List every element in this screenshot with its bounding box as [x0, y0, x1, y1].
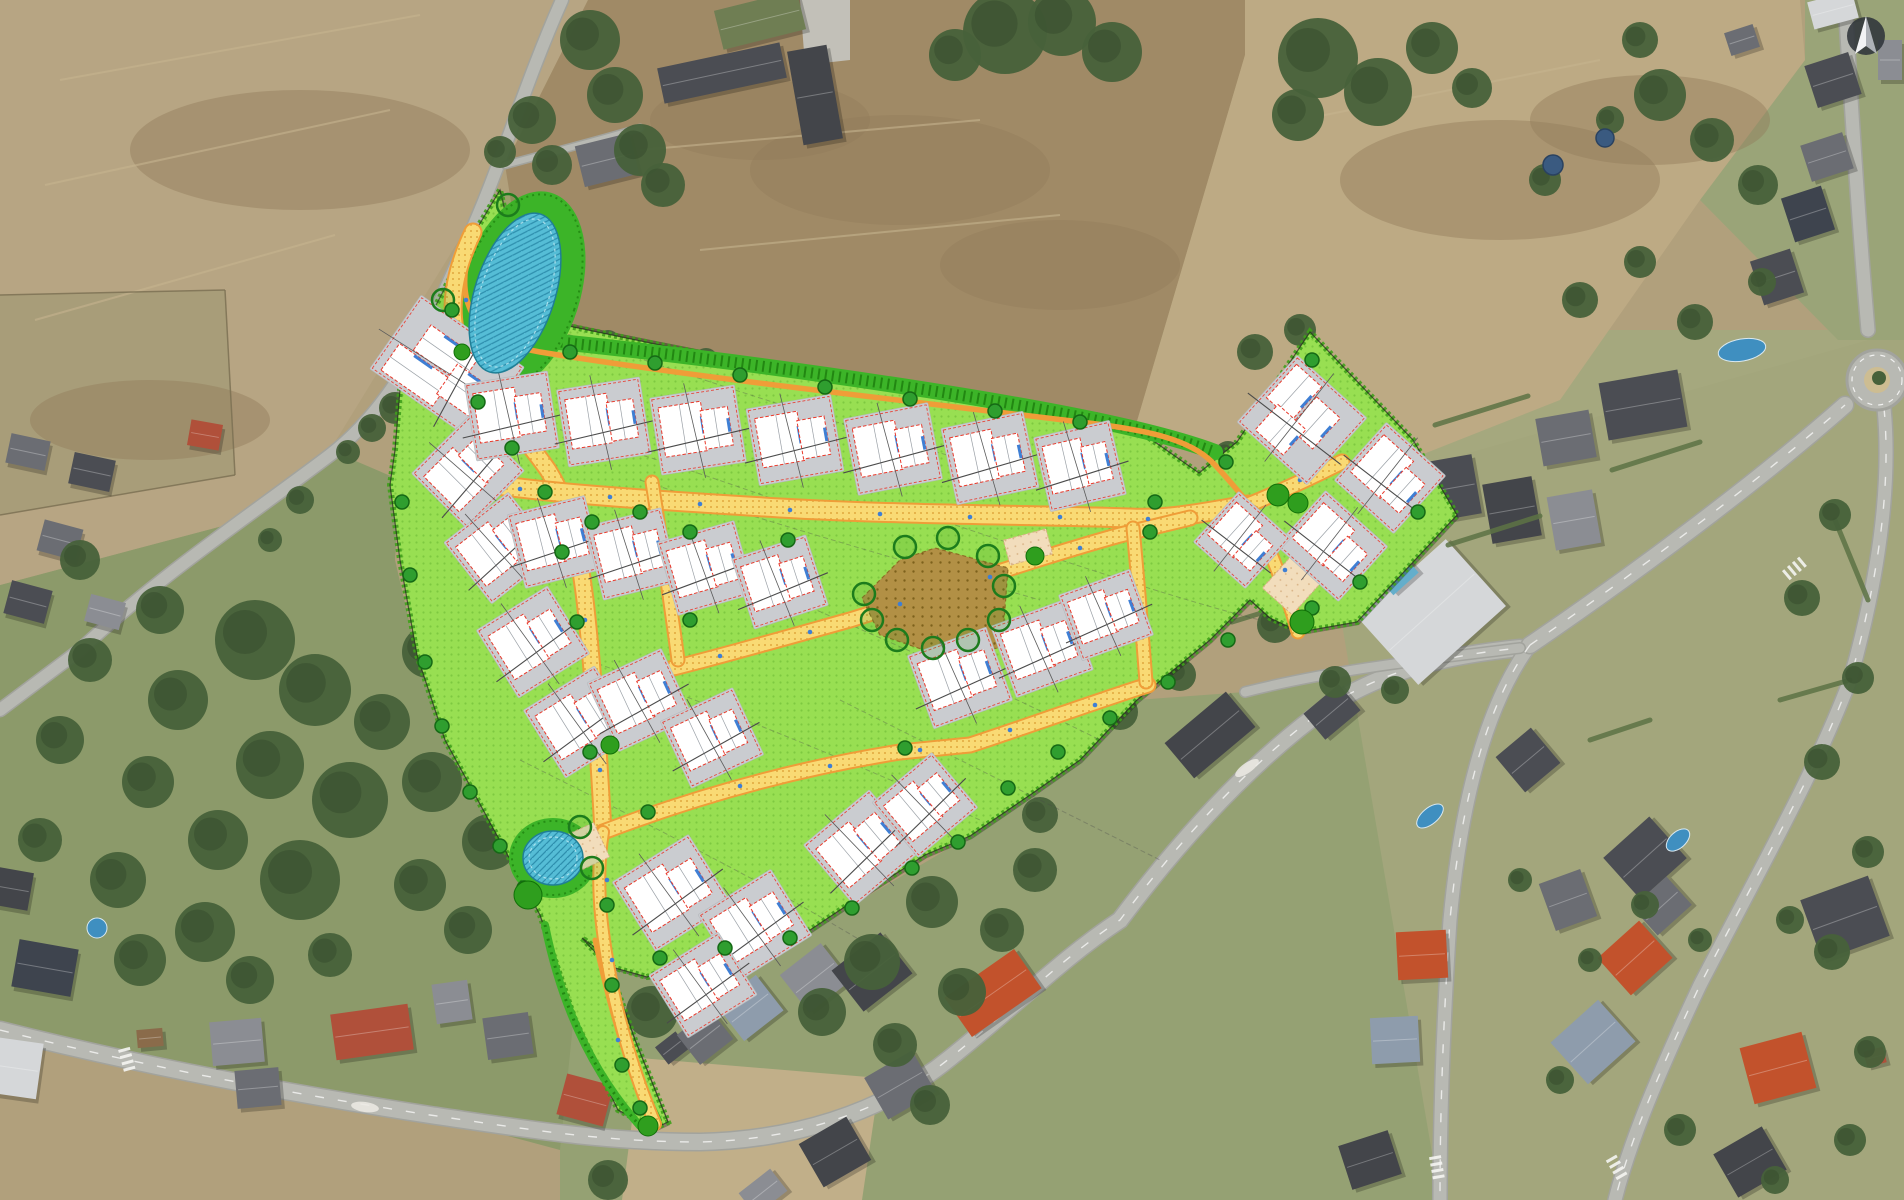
tree-cluster: [1761, 1166, 1789, 1194]
tree-cluster: [1272, 89, 1324, 141]
planned-tree-ring: [993, 575, 1015, 597]
shrub-patch: [1267, 484, 1289, 506]
street-lamp-dot: [518, 487, 523, 492]
tree-cluster: [1852, 836, 1884, 868]
aerial-house: [209, 1018, 268, 1071]
aerial-house: [1482, 476, 1545, 548]
tree-cluster: [641, 163, 685, 207]
street-lamp-dot: [808, 630, 813, 635]
tree-cluster: [336, 440, 360, 464]
planned-tree-ring: [977, 545, 999, 567]
tree-cluster: [798, 988, 846, 1036]
shrub-patch: [454, 344, 470, 360]
street-lamp-dot: [1008, 728, 1013, 733]
tree-cluster: [114, 934, 166, 986]
planned-tree: [435, 719, 449, 733]
planned-tree-ring: [894, 536, 916, 558]
street-lamp-dot: [788, 508, 793, 513]
planned-tree: [403, 568, 417, 582]
planned-tree: [733, 368, 747, 382]
planned-tree: [615, 1058, 629, 1072]
planned-tree: [493, 839, 507, 853]
aerial-house: [186, 419, 226, 455]
planned-tree: [683, 525, 697, 539]
tree-cluster: [1082, 22, 1142, 82]
tree-cluster: [1546, 1066, 1574, 1094]
tree-cluster: [226, 956, 274, 1004]
tree-cluster: [122, 756, 174, 808]
planned-tree: [395, 495, 409, 509]
shrub-patch: [1288, 493, 1308, 513]
tree-cluster: [394, 859, 446, 911]
street-lamp-dot: [738, 784, 743, 789]
tree-cluster: [188, 810, 248, 870]
planned-tree: [600, 898, 614, 912]
tree-cluster: [1634, 69, 1686, 121]
planned-tree: [683, 613, 697, 627]
planned-tree: [505, 441, 519, 455]
tree-cluster: [1688, 928, 1712, 952]
planned-tree: [641, 805, 655, 819]
aerial-house: [234, 1067, 284, 1113]
tree-cluster: [36, 716, 84, 764]
tree-cluster: [1452, 68, 1492, 108]
tree-cluster: [910, 1085, 950, 1125]
street-lamp-dot: [988, 575, 993, 580]
tree-cluster: [402, 752, 462, 812]
street-lamp-dot: [718, 654, 723, 659]
map-canvas: [0, 0, 1904, 1200]
planned-tree: [570, 615, 584, 629]
aerial-house: [431, 979, 476, 1028]
tree-cluster: [587, 67, 643, 123]
tree-cluster: [929, 29, 981, 81]
aerial-house: [11, 939, 82, 1001]
tree-cluster: [1748, 268, 1776, 296]
planned-tree-ring: [957, 629, 979, 651]
aerial-house: [1547, 489, 1605, 555]
planned-tree: [1001, 781, 1015, 795]
tree-cluster: [1784, 580, 1820, 616]
tree-cluster: [236, 731, 304, 799]
tree-cluster: [60, 540, 100, 580]
street-lamp-dot: [1146, 517, 1151, 522]
planned-tree: [538, 485, 552, 499]
planned-tree: [1073, 415, 1087, 429]
planned-tree: [988, 404, 1002, 418]
tree-cluster: [308, 933, 352, 977]
tree-cluster: [1406, 22, 1458, 74]
tree-cluster: [175, 902, 235, 962]
swimming-pool: [87, 918, 107, 938]
planned-tree: [605, 978, 619, 992]
tree-cluster: [532, 145, 572, 185]
planned-tree: [1305, 353, 1319, 367]
tree-cluster: [1738, 165, 1778, 205]
planned-tree: [463, 785, 477, 799]
planned-tree: [583, 745, 597, 759]
tree-cluster: [215, 600, 295, 680]
tree-cluster: [1690, 118, 1734, 162]
street-lamp-dot: [898, 602, 903, 607]
tree-cluster: [508, 96, 556, 144]
aerial-house: [1535, 409, 1600, 470]
street-lamp-dot: [968, 515, 973, 520]
street-lamp-dot: [464, 298, 469, 303]
tree-cluster: [354, 694, 410, 750]
planned-tree: [1219, 455, 1233, 469]
planned-tree-ring: [988, 609, 1010, 631]
tree-cluster: [1624, 246, 1656, 278]
street-lamp-dot: [918, 748, 923, 753]
tree-cluster: [1622, 22, 1658, 58]
planned-tree: [1411, 505, 1425, 519]
tree-cluster: [980, 908, 1024, 952]
planned-tree: [585, 515, 599, 529]
tree-cluster: [1814, 934, 1850, 970]
retention-pond: [523, 831, 583, 885]
shrub-patch: [514, 881, 542, 909]
tree-cluster: [1842, 662, 1874, 694]
planned-tree-ring: [853, 583, 875, 605]
planned-tree: [783, 931, 797, 945]
street-lamp-dot: [598, 768, 603, 773]
masterplan-aerial-map[interactable]: [0, 0, 1904, 1200]
street-lamp-dot: [698, 502, 703, 507]
planned-tree: [903, 392, 917, 406]
tree-cluster: [560, 10, 620, 70]
tree-cluster: [1013, 848, 1057, 892]
street-lamp-dot: [1283, 568, 1288, 573]
aerial-house: [136, 1028, 167, 1052]
tree-cluster: [1664, 1114, 1696, 1146]
tree-cluster: [18, 818, 62, 862]
tree-cluster: [1776, 906, 1804, 934]
tree-cluster: [260, 840, 340, 920]
planned-tree: [1148, 495, 1162, 509]
tree-cluster: [312, 762, 388, 838]
tree-cluster: [1677, 304, 1713, 340]
roundabout: [1847, 350, 1904, 410]
planned-tree: [1221, 633, 1235, 647]
street-lamp-dot: [616, 1038, 621, 1043]
shrub-patch: [1290, 610, 1314, 634]
tree-cluster: [588, 1160, 628, 1200]
tree-cluster: [286, 486, 314, 514]
street-lamp-dot: [828, 764, 833, 769]
shrub-patch: [1026, 547, 1044, 565]
tree-cluster: [1022, 797, 1058, 833]
planned-tree: [1353, 575, 1367, 589]
planned-tree-ring: [886, 629, 908, 651]
planned-tree: [633, 1101, 647, 1115]
planned-tree: [905, 861, 919, 875]
shrub-patch: [638, 1116, 658, 1136]
tree-cluster: [1319, 666, 1351, 698]
tree-cluster: [1819, 499, 1851, 531]
tree-cluster: [1631, 891, 1659, 919]
planned-tree: [633, 505, 647, 519]
planned-tree: [818, 380, 832, 394]
tree-cluster: [938, 968, 986, 1016]
tree-cluster: [444, 906, 492, 954]
street-lamp-dot: [605, 878, 610, 883]
street-lamp-dot: [1058, 515, 1063, 520]
planned-tree-ring: [581, 857, 603, 879]
street-lamp-dot: [608, 495, 613, 500]
planned-tree: [1051, 745, 1065, 759]
planned-tree-ring: [497, 194, 519, 216]
tree-cluster: [1854, 1036, 1886, 1068]
planned-tree: [781, 533, 795, 547]
street-lamp-dot: [610, 958, 615, 963]
tree-cluster: [873, 1023, 917, 1067]
planned-tree: [563, 345, 577, 359]
planned-tree: [471, 395, 485, 409]
tree-cluster: [1508, 868, 1532, 892]
field-blotch: [940, 220, 1180, 310]
planned-tree: [1161, 675, 1175, 689]
tree-cluster: [136, 586, 184, 634]
tree-cluster: [258, 528, 282, 552]
tree-cluster: [844, 934, 900, 990]
trampoline: [1596, 129, 1614, 147]
planned-tree: [1143, 525, 1157, 539]
planned-tree: [653, 951, 667, 965]
planned-tree: [898, 741, 912, 755]
tree-cluster: [906, 876, 958, 928]
planned-tree: [555, 545, 569, 559]
tree-cluster: [279, 654, 351, 726]
aerial-house: [1878, 40, 1904, 84]
planned-tree: [951, 835, 965, 849]
field-blotch: [130, 90, 470, 210]
aerial-house: [482, 1012, 537, 1064]
tree-cluster: [148, 670, 208, 730]
street-lamp-dot: [1093, 703, 1098, 708]
aerial-house: [1396, 930, 1452, 985]
trampoline: [1543, 155, 1563, 175]
planned-tree: [648, 356, 662, 370]
tree-cluster: [68, 638, 112, 682]
tree-cluster: [1237, 334, 1273, 370]
tree-cluster: [484, 136, 516, 168]
planned-tree-ring: [861, 609, 883, 631]
tree-cluster: [1804, 744, 1840, 780]
planned-tree: [1103, 711, 1117, 725]
tree-cluster: [90, 852, 146, 908]
tree-cluster: [1344, 58, 1412, 126]
tree-cluster: [1578, 948, 1602, 972]
aerial-house: [1370, 1016, 1424, 1069]
tree-cluster: [358, 414, 386, 442]
street-lamp-dot: [878, 512, 883, 517]
planned-tree-ring: [922, 637, 944, 659]
shrub-patch: [601, 736, 619, 754]
tree-cluster: [1381, 676, 1409, 704]
planned-tree: [845, 901, 859, 915]
planned-tree: [418, 655, 432, 669]
tree-cluster: [1562, 282, 1598, 318]
street-lamp-dot: [1078, 546, 1083, 551]
planned-tree-ring: [937, 527, 959, 549]
planned-tree: [718, 941, 732, 955]
aerial-house: [0, 1037, 47, 1104]
planned-tree-ring: [569, 816, 591, 838]
tree-cluster: [1834, 1124, 1866, 1156]
planned-tree: [445, 303, 459, 317]
